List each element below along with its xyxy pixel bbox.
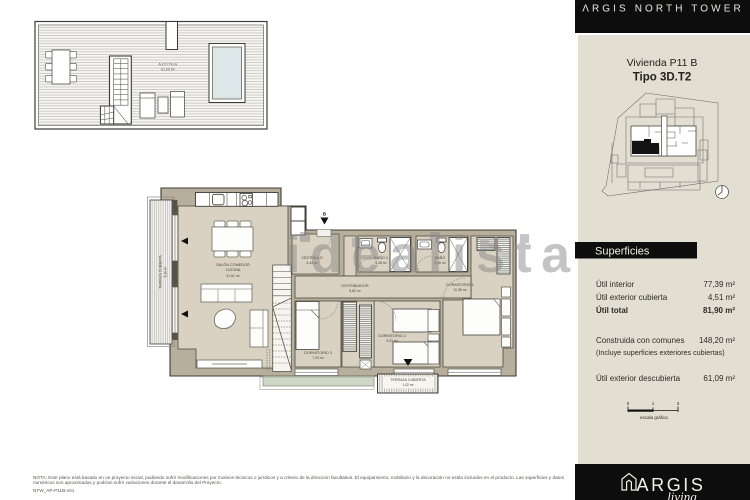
svg-text:5,82 m²: 5,82 m² <box>349 289 361 293</box>
svg-text:Vivienda P11 B: Vivienda P11 B <box>627 57 698 69</box>
svg-text:TERRAZA CUBIERTA: TERRAZA CUBIERTA <box>390 378 426 382</box>
svg-text:61,09 m²: 61,09 m² <box>703 374 735 383</box>
svg-text:DORMITORIO 2: DORMITORIO 2 <box>378 334 406 338</box>
svg-text:AZOTEA: AZOTEA <box>158 62 178 67</box>
svg-text:NTW_AP-P11B-v01: NTW_AP-P11B-v01 <box>33 488 75 493</box>
svg-text:ΛRGIS NORTH TOWER: ΛRGIS NORTH TOWER <box>582 4 744 15</box>
svg-text:living: living <box>667 489 697 500</box>
svg-text:10,38 m²: 10,38 m² <box>453 288 467 292</box>
svg-text:9,03 m²: 9,03 m² <box>386 339 398 343</box>
svg-text:7,03 m²: 7,03 m² <box>312 356 324 360</box>
svg-text:escala gráfica: escala gráfica <box>640 415 668 420</box>
svg-text:Útil exterior cubierta: Útil exterior cubierta <box>596 293 668 302</box>
svg-text:Útil interior: Útil interior <box>596 280 635 289</box>
svg-text:(Incluye superficies exteriore: (Incluye superficies exteriores cubierta… <box>596 348 725 357</box>
svg-text:148,20 m²: 148,20 m² <box>699 336 735 345</box>
svg-text:Útil exterior descubierta: Útil exterior descubierta <box>596 374 681 383</box>
svg-text:Superficies: Superficies <box>595 246 650 258</box>
svg-text:SALÓN COMEDOR: SALÓN COMEDOR <box>216 262 250 267</box>
svg-text:61,09 m²: 61,09 m² <box>161 68 175 72</box>
svg-text:1,02 m²: 1,02 m² <box>402 383 414 387</box>
svg-text:Tipo 3D.T2: Tipo 3D.T2 <box>633 72 692 84</box>
svg-text:Útil total: Útil total <box>596 306 628 315</box>
svg-text:31,51 m²: 31,51 m² <box>226 274 240 278</box>
svg-text:TERRAZA CUBIERTA: TERRAZA CUBIERTA <box>159 255 163 289</box>
svg-text:COCINA: COCINA <box>226 268 241 272</box>
svg-text:B: B <box>323 212 326 217</box>
svg-text:Construida con comunes: Construida con comunes <box>596 336 685 345</box>
svg-text:DISTRIBUIDOR: DISTRIBUIDOR <box>341 284 368 288</box>
svg-text:81,90 m²: 81,90 m² <box>703 306 735 315</box>
svg-text:numéricos son aproximados y po: numéricos son aproximados y podrían sufr… <box>33 480 222 485</box>
svg-text:4,51 m²: 4,51 m² <box>708 293 735 302</box>
svg-text:DORMITORIO 3: DORMITORIO 3 <box>304 351 332 355</box>
svg-text:5,10 m²: 5,10 m² <box>164 267 168 278</box>
svg-text:77,39 m²: 77,39 m² <box>703 280 735 289</box>
